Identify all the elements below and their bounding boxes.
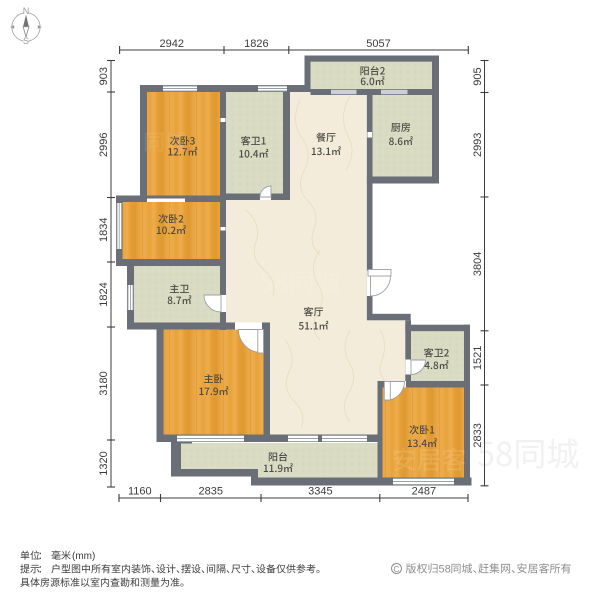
svg-text:1160: 1160 <box>128 486 152 498</box>
svg-text:903: 903 <box>98 67 110 85</box>
svg-text:905: 905 <box>472 67 484 85</box>
svg-text:N: N <box>23 6 30 16</box>
svg-text:2835: 2835 <box>199 486 223 498</box>
svg-text:2996: 2996 <box>98 132 110 156</box>
svg-text:1834: 1834 <box>98 217 110 241</box>
svg-text:3804: 3804 <box>472 252 484 276</box>
svg-text:2942: 2942 <box>160 38 184 50</box>
svg-text:1826: 1826 <box>244 38 268 50</box>
svg-text:(mm): (mm) <box>72 551 95 562</box>
svg-text:5057: 5057 <box>366 38 390 50</box>
svg-text:C: C <box>393 564 399 574</box>
svg-text:2487: 2487 <box>412 486 436 498</box>
svg-text:58: 58 <box>439 564 451 576</box>
svg-text:S: S <box>23 36 29 46</box>
svg-text:1824: 1824 <box>98 282 110 306</box>
svg-text:1521: 1521 <box>472 346 484 370</box>
svg-text:1320: 1320 <box>98 451 110 475</box>
svg-text:2993: 2993 <box>472 133 484 157</box>
svg-text:3180: 3180 <box>98 371 110 395</box>
svg-text:3345: 3345 <box>308 486 332 498</box>
